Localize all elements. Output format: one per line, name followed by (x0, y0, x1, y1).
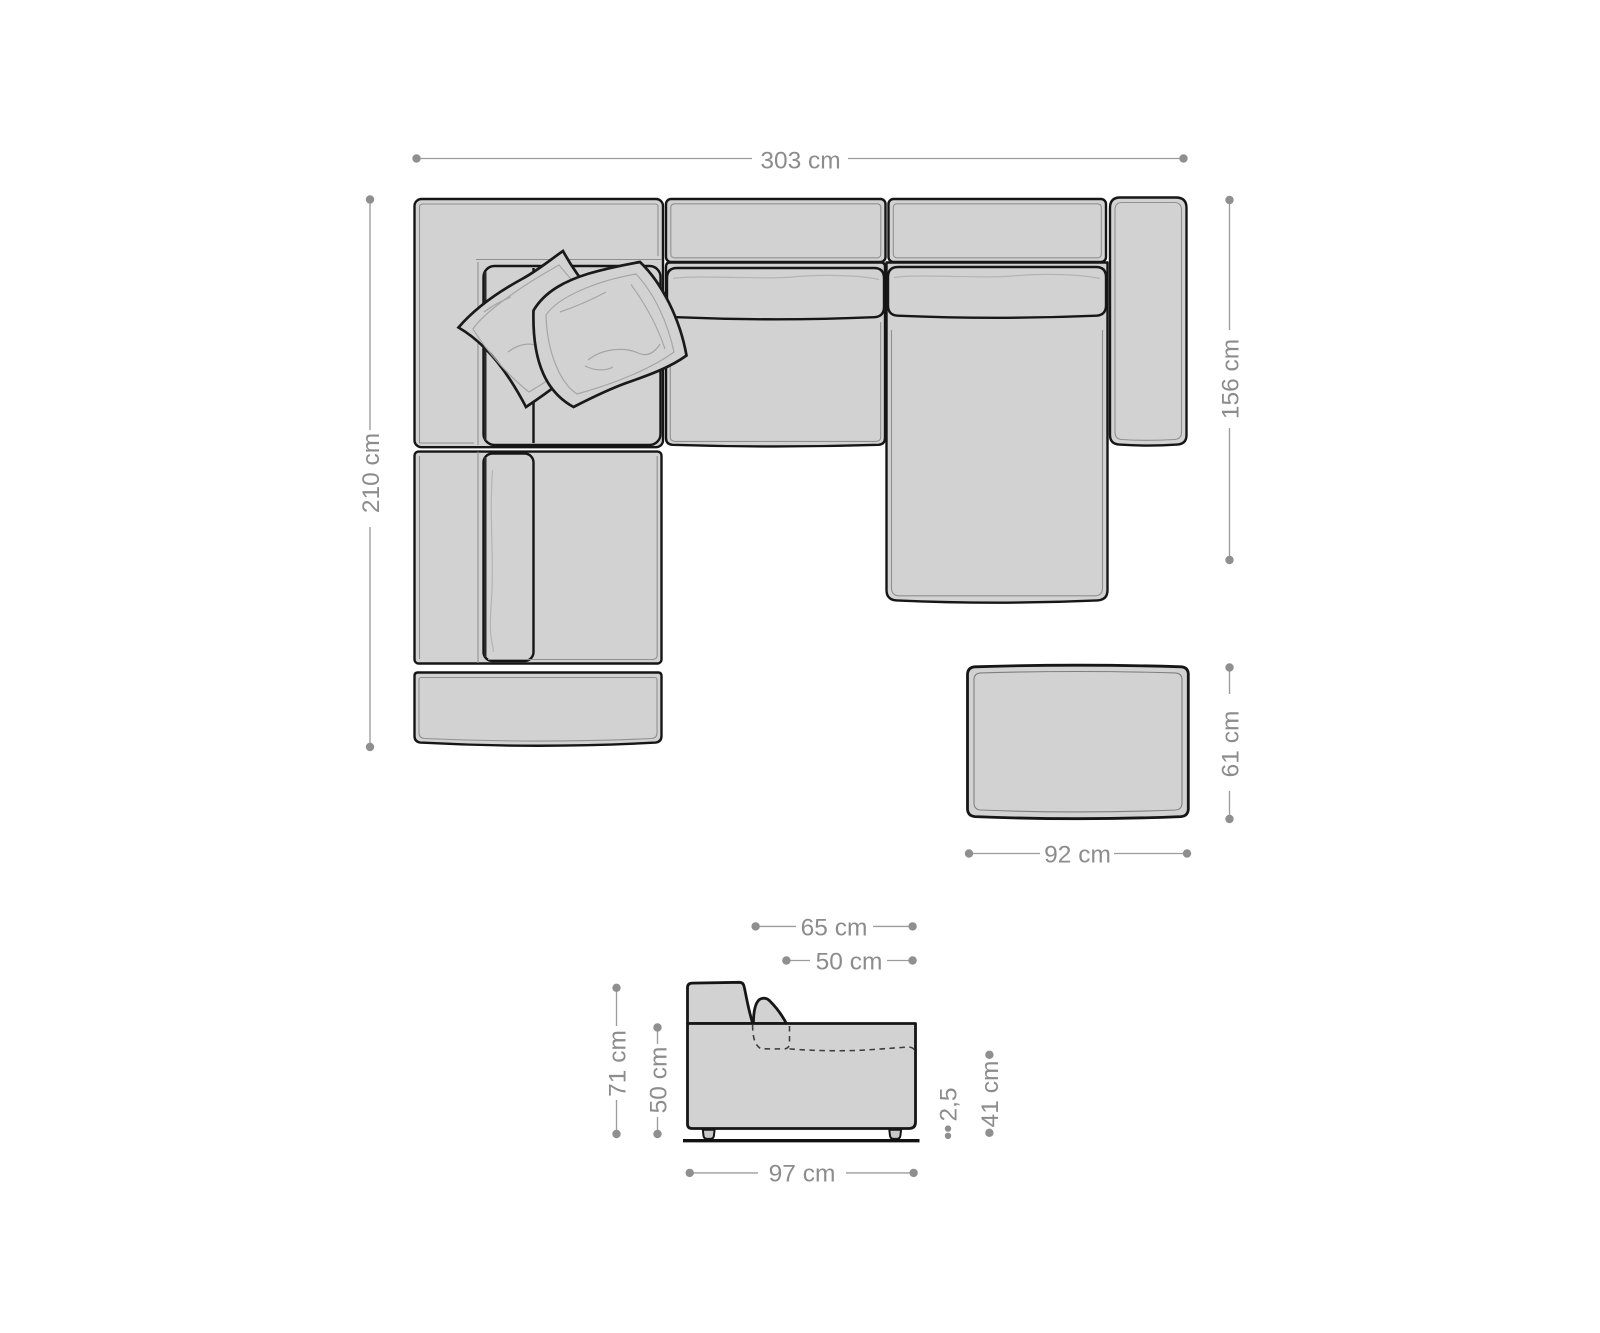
svg-text:65 cm: 65 cm (801, 914, 868, 941)
svg-text:2,5: 2,5 (936, 1087, 963, 1121)
svg-text:97 cm: 97 cm (769, 1161, 836, 1188)
svg-text:50 cm: 50 cm (646, 1047, 673, 1114)
svg-text:41 cm: 41 cm (977, 1061, 1004, 1128)
svg-text:50 cm: 50 cm (816, 948, 883, 975)
svg-text:92 cm: 92 cm (1044, 842, 1111, 869)
svg-text:61 cm: 61 cm (1218, 711, 1245, 778)
svg-text:210 cm: 210 cm (358, 433, 385, 513)
svg-text:303 cm: 303 cm (760, 147, 840, 174)
svg-text:156 cm: 156 cm (1218, 339, 1245, 419)
svg-text:71 cm: 71 cm (605, 1030, 632, 1097)
